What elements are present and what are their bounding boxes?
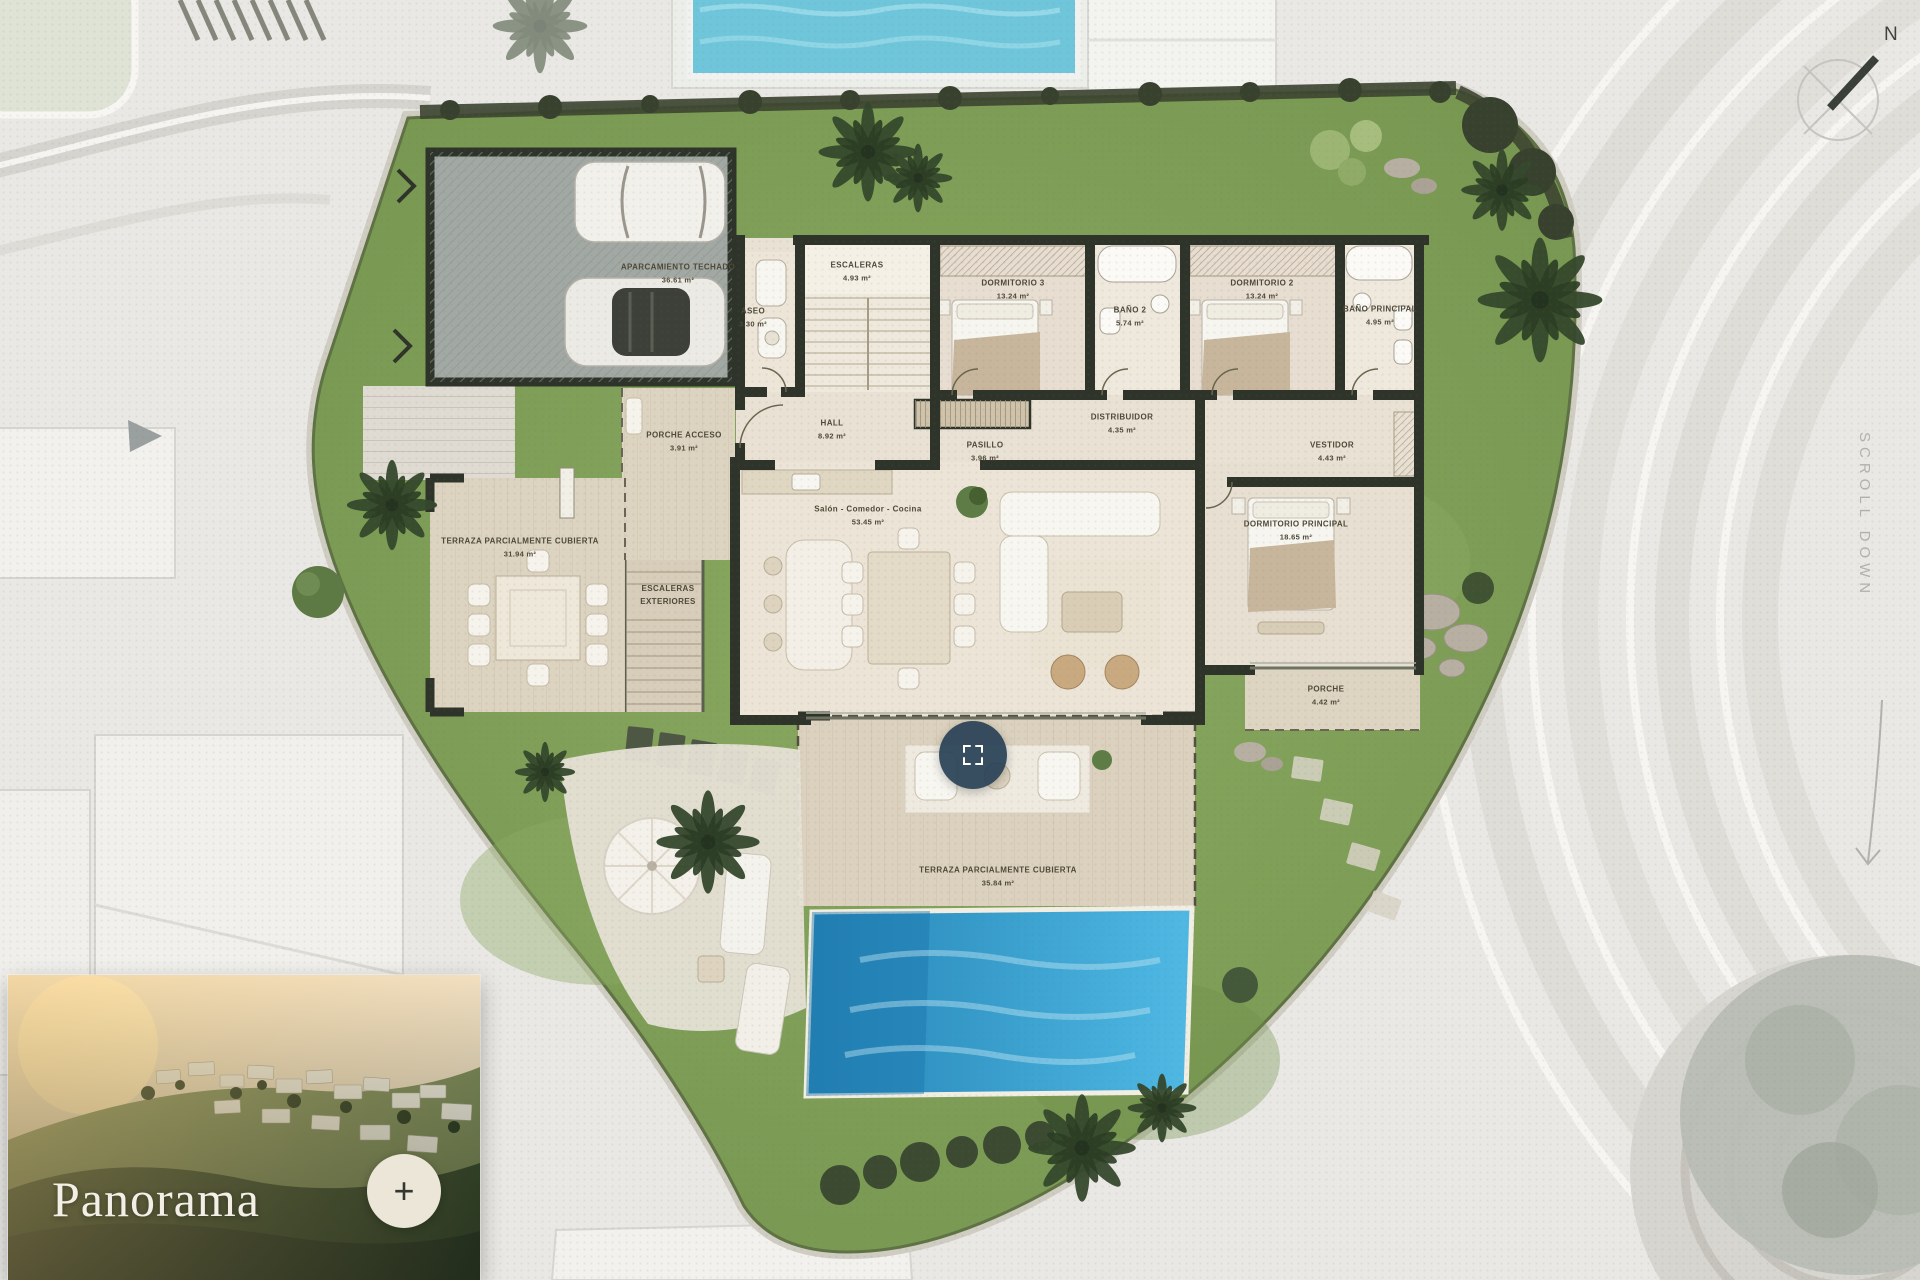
room-label-vestidor: VESTIDOR 4.43 m²: [1310, 440, 1354, 465]
room-label-bano-principal: BAÑO PRINCIPAL 4.95 m²: [1343, 304, 1417, 329]
room-label-terraza-cubierta-oeste: TERRAZA PARCIALMENTE CUBIERTA 31.94 m²: [441, 536, 599, 561]
compass-north-label: N: [1884, 24, 1898, 46]
terrace-left: [430, 468, 625, 712]
panorama-plus-button[interactable]: +: [367, 1154, 441, 1228]
room-label-aparcamiento-techado: APARCAMIENTO TECHADO 36.61 m²: [621, 262, 735, 287]
room-label-escaleras: ESCALERAS 4.93 m²: [831, 260, 884, 285]
room-label-escaleras-exteriores: ESCALERAS EXTERIORES: [636, 583, 700, 609]
room-label-dormitorio-2: DORMITORIO 2 13.24 m²: [1230, 278, 1293, 303]
panorama-thumbnail: [8, 975, 480, 1280]
room-label-terraza-cubierta-sur: TERRAZA PARCIALMENTE CUBIERTA 35.84 m²: [919, 865, 1077, 890]
room-label-dormitorio-3: DORMITORIO 3 13.24 m²: [981, 278, 1044, 303]
expand-plan-button[interactable]: [939, 721, 1007, 789]
room-label-salon-comedor-cocina: Salón - Comedor - Cocina 53.45 m²: [814, 504, 921, 529]
panorama-card[interactable]: Panorama +: [8, 975, 480, 1280]
scroll-down-indicator: SCROLL DOWN: [1856, 432, 1873, 598]
plus-icon: +: [393, 1173, 414, 1209]
floorplan-page: APARCAMIENTO TECHADO 36.61 m² ASEO 3.30 …: [0, 0, 1920, 1280]
room-label-aseo: ASEO 3.30 m²: [739, 306, 767, 331]
panorama-label: Panorama: [52, 1170, 260, 1228]
pool: [806, 908, 1192, 1096]
fullscreen-icon: [960, 742, 986, 768]
driveway: [363, 386, 515, 480]
room-label-porche-acceso: PORCHE ACCESO 3.91 m²: [646, 430, 722, 455]
room-label-bano-2: BAÑO 2 5.74 m²: [1114, 305, 1147, 330]
room-label-hall: HALL 8.92 m²: [818, 418, 846, 443]
room-label-pasillo: PASILLO 3.96 m²: [967, 440, 1004, 465]
room-label-distribuidor: DISTRIBUIDOR 4.35 m²: [1091, 412, 1154, 437]
room-label-dormitorio-principal: DORMITORIO PRINCIPAL 18.65 m²: [1244, 519, 1349, 544]
room-label-porche: PORCHE 4.42 m²: [1308, 684, 1345, 709]
